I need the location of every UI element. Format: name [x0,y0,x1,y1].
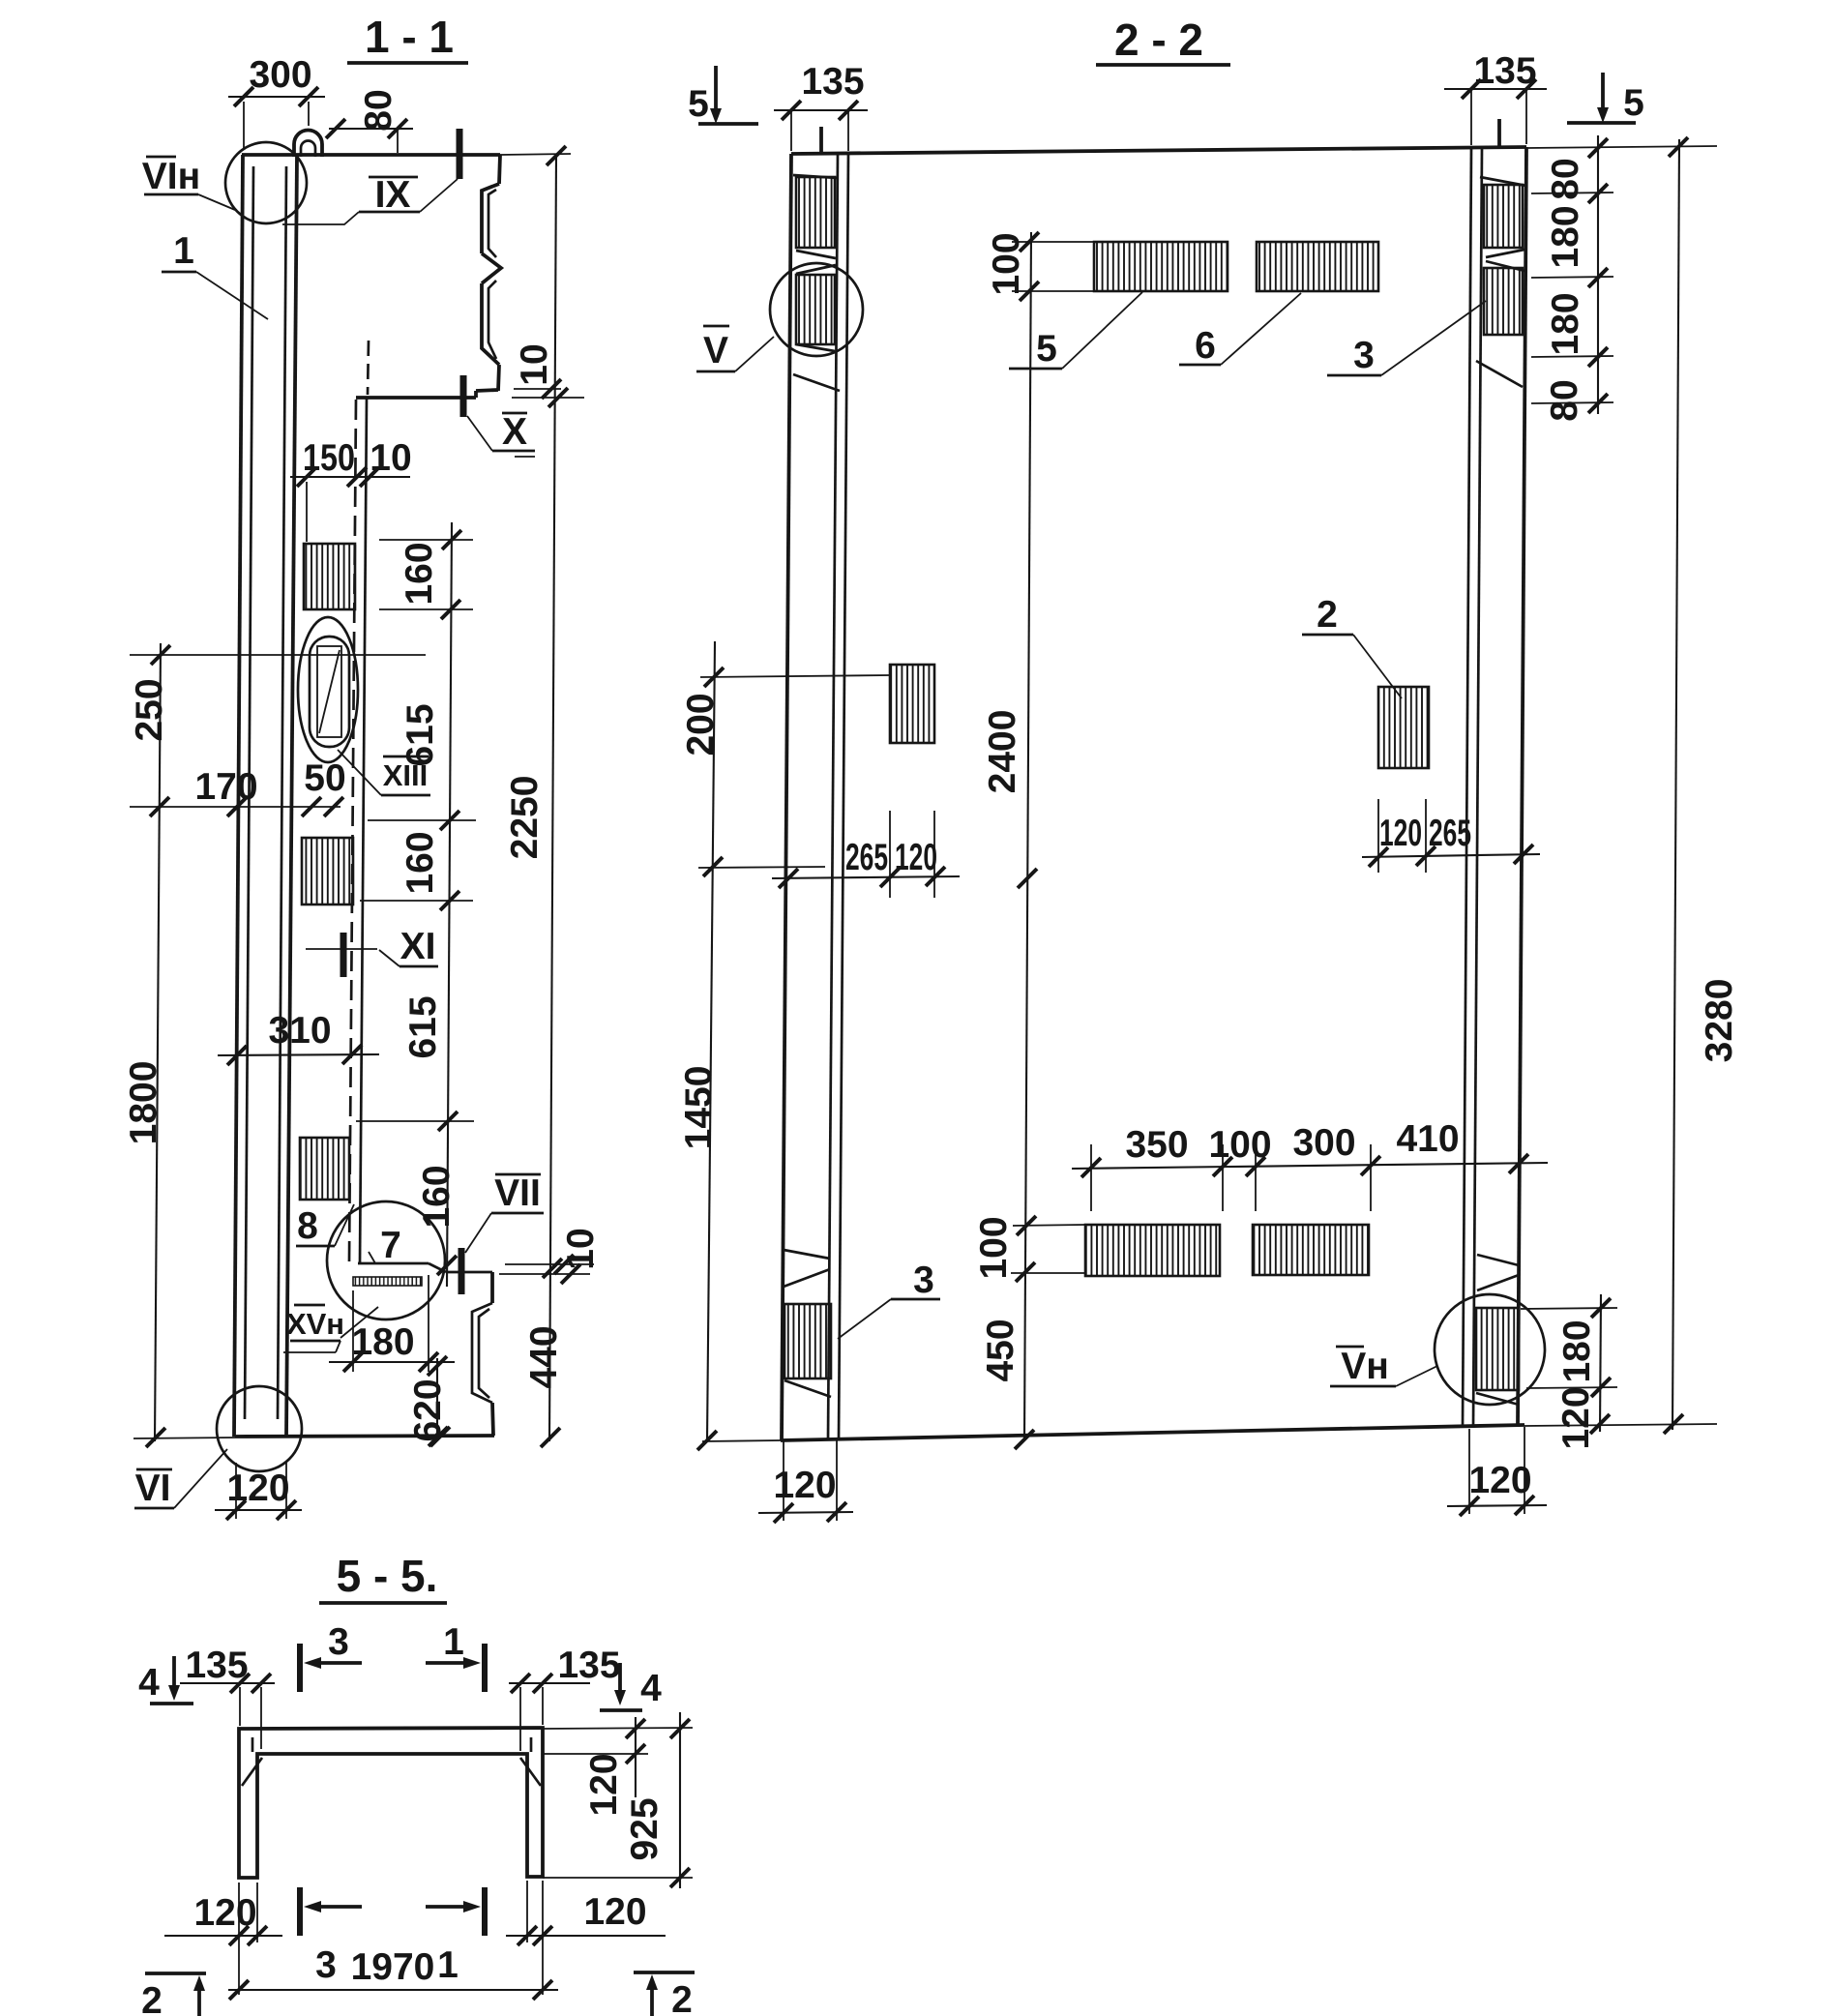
svg-text:XVн: XVн [286,1307,344,1341]
svg-text:4: 4 [640,1668,662,1709]
svg-text:XI: XI [400,926,436,967]
svg-text:5: 5 [1623,82,1644,124]
svg-text:120: 120 [895,837,937,878]
svg-text:80: 80 [358,89,400,131]
svg-text:135: 135 [185,1645,248,1686]
svg-text:450: 450 [980,1319,1021,1381]
svg-text:6: 6 [1195,325,1216,367]
svg-text:2400: 2400 [982,710,1023,794]
svg-text:160: 160 [400,831,441,894]
svg-text:VI: VI [135,1468,171,1509]
svg-text:135: 135 [801,61,864,103]
svg-text:1970: 1970 [351,1946,435,1988]
svg-text:1 - 1: 1 - 1 [365,12,454,62]
svg-text:265: 265 [845,837,888,878]
svg-text:180: 180 [1556,1319,1598,1382]
svg-text:300: 300 [249,54,311,96]
svg-text:IX: IX [375,174,411,216]
svg-text:1: 1 [443,1621,464,1663]
svg-text:80: 80 [1544,379,1585,421]
svg-text:5 - 5.: 5 - 5. [337,1551,438,1601]
svg-text:120: 120 [583,1891,646,1933]
svg-text:1: 1 [437,1944,459,1986]
svg-text:135: 135 [557,1645,620,1686]
svg-text:120: 120 [583,1753,625,1816]
svg-text:100: 100 [973,1216,1015,1279]
svg-text:3: 3 [328,1621,349,1663]
svg-text:170: 170 [194,766,257,808]
svg-text:X: X [502,411,527,453]
svg-text:VII: VII [494,1172,541,1214]
svg-text:7: 7 [380,1225,401,1266]
svg-text:1450: 1450 [678,1066,720,1150]
svg-text:440: 440 [523,1325,565,1388]
svg-text:615: 615 [402,995,444,1058]
svg-text:3: 3 [913,1260,934,1301]
svg-text:2: 2 [1317,594,1338,636]
svg-text:V: V [703,330,728,371]
svg-text:2: 2 [671,1979,693,2016]
svg-text:160: 160 [399,542,440,605]
svg-text:200: 200 [680,693,722,756]
svg-text:VIн: VIн [142,156,200,197]
svg-text:XIII: XIII [383,758,429,792]
svg-text:2250: 2250 [504,776,546,860]
svg-text:5: 5 [688,83,709,125]
svg-text:180: 180 [1545,205,1586,268]
svg-text:3: 3 [1353,335,1375,376]
svg-text:5: 5 [1036,328,1057,370]
svg-text:10: 10 [514,343,555,385]
svg-text:50: 50 [304,757,345,799]
svg-text:Vн: Vн [1341,1346,1389,1387]
svg-text:2 - 2: 2 - 2 [1114,15,1203,65]
svg-text:310: 310 [268,1010,331,1052]
svg-text:410: 410 [1396,1118,1459,1160]
svg-text:3: 3 [315,1944,337,1986]
svg-text:350: 350 [1125,1124,1188,1166]
svg-text:3280: 3280 [1699,979,1740,1063]
svg-text:180: 180 [1545,292,1586,355]
svg-text:120: 120 [1555,1386,1597,1449]
svg-text:925: 925 [624,1797,666,1860]
svg-text:4: 4 [138,1662,160,1704]
svg-text:120: 120 [1468,1460,1531,1501]
svg-text:8: 8 [297,1205,318,1247]
svg-text:300: 300 [1292,1122,1355,1164]
svg-text:250: 250 [129,678,170,741]
svg-text:160: 160 [416,1165,458,1228]
svg-text:2: 2 [141,1980,163,2016]
svg-text:1: 1 [173,230,194,272]
